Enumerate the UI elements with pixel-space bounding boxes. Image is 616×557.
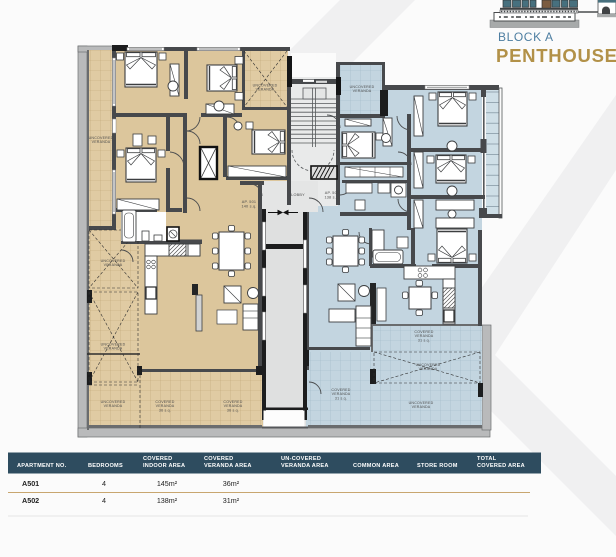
svg-text:31m²: 31m² xyxy=(223,496,240,505)
svg-text:UNCOVEREDVERANDA: UNCOVEREDVERANDA xyxy=(101,343,126,351)
svg-text:A501: A501 xyxy=(22,479,39,488)
svg-text:COVERED: COVERED xyxy=(204,456,233,462)
svg-text:LOBBY: LOBBY xyxy=(291,193,305,197)
svg-text:4: 4 xyxy=(102,496,106,505)
svg-text:INDOOR AREA: INDOOR AREA xyxy=(143,463,185,469)
svg-text:UN-COVERED: UN-COVERED xyxy=(281,456,321,462)
svg-text:UNCOVEREDVERANDA: UNCOVEREDVERANDA xyxy=(253,84,278,92)
svg-text:STORE ROOM: STORE ROOM xyxy=(417,463,458,469)
svg-text:COVERED: COVERED xyxy=(143,456,172,462)
svg-text:UNCOVEREDVERANDA: UNCOVEREDVERANDA xyxy=(416,363,441,371)
svg-text:4: 4 xyxy=(102,479,106,488)
svg-text:UNCOVEREDVERANDA: UNCOVEREDVERANDA xyxy=(101,259,126,267)
svg-text:VERANDA AREA: VERANDA AREA xyxy=(281,463,329,469)
svg-text:138m²: 138m² xyxy=(157,496,178,505)
svg-text:145m²: 145m² xyxy=(157,479,178,488)
svg-text:AP. 501140 s.q.: AP. 501140 s.q. xyxy=(241,200,256,208)
svg-text:36m²: 36m² xyxy=(223,479,240,488)
svg-text:UNCOVEREDVERANDA: UNCOVEREDVERANDA xyxy=(350,85,375,93)
svg-text:AP. 502138 s.q.: AP. 502138 s.q. xyxy=(324,191,339,199)
svg-text:UNCOVEREDVERANDA: UNCOVEREDVERANDA xyxy=(101,400,126,408)
svg-text:UNCOVEREDVERANDA: UNCOVEREDVERANDA xyxy=(409,401,434,409)
svg-text:BEDROOMS: BEDROOMS xyxy=(88,463,123,469)
svg-text:UNCOVEREDVERANDA: UNCOVEREDVERANDA xyxy=(89,136,114,144)
svg-text:TOTAL: TOTAL xyxy=(477,456,497,462)
svg-text:APARTMENT NO.: APARTMENT NO. xyxy=(17,463,67,469)
svg-text:PENTHOUSE: PENTHOUSE xyxy=(496,45,616,66)
svg-text:BLOCK A: BLOCK A xyxy=(498,30,554,44)
svg-text:COMMON AREA: COMMON AREA xyxy=(353,463,399,469)
svg-text:A502: A502 xyxy=(22,496,39,505)
svg-text:VERANDA AREA: VERANDA AREA xyxy=(204,463,252,469)
svg-text:COVERED AREA: COVERED AREA xyxy=(477,463,525,469)
